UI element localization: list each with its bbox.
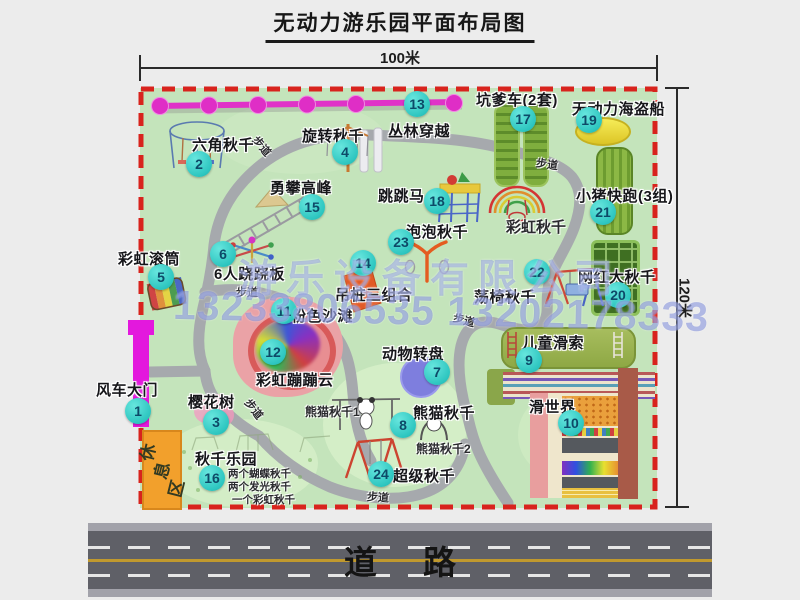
poi-6-badge: 6	[210, 241, 236, 267]
poi-18-label: 跳跳马	[378, 185, 425, 206]
map-note-8: 步道	[236, 284, 258, 300]
poi-16-label: 秋千乐园	[195, 448, 257, 469]
map-note-5: 一个彩虹秋千	[232, 492, 295, 507]
poi-12-badge: 12	[260, 339, 286, 365]
poi-17-badge: 17	[510, 106, 536, 132]
poi-11-badge: 11	[271, 298, 297, 324]
poi-1-label: 风车大门	[96, 379, 158, 400]
park-plan-canvas: 无动力游乐园平面布局图 100米 120米	[0, 0, 800, 600]
map-note-11: 步道	[366, 488, 389, 505]
poi-8-label: 熊猫秋千	[413, 402, 475, 423]
poi-18-badge: 18	[424, 188, 450, 214]
poi-21-badge: 21	[590, 199, 616, 225]
poi-11-label: 粉色沙滩	[291, 305, 353, 326]
poi-10-badge: 10	[558, 410, 584, 436]
poi-22-badge: 22	[524, 259, 550, 285]
poi-3-badge: 3	[203, 409, 229, 435]
poi-22-label: 荡椅秋千	[474, 286, 536, 307]
poi-7-badge: 7	[424, 359, 450, 385]
map-note-10: 步道	[241, 395, 267, 422]
poi-8-badge: 8	[390, 412, 416, 438]
poi-16-badge: 16	[199, 465, 225, 491]
poi-13-label: 丛林穿越	[388, 120, 450, 141]
poi-15-badge: 15	[299, 194, 325, 220]
poi-21-label: 小猪快跑(3组)	[576, 185, 673, 206]
poi-20-badge: 20	[605, 282, 631, 308]
poi-23-label: 泡泡秋千	[406, 221, 468, 242]
poi-14-badge: 14	[350, 250, 376, 276]
poi-9-badge: 9	[516, 347, 542, 373]
poi-1-badge: 1	[125, 398, 151, 424]
map-note-1: 熊猫秋千1	[305, 403, 360, 420]
poi-2-badge: 2	[186, 151, 212, 177]
map-note-0: 彩虹秋千	[506, 216, 566, 237]
poi-15-label: 勇攀高峰	[270, 177, 332, 198]
map-note-9: 步道	[451, 309, 476, 330]
poi-12-label: 彩虹蹦蹦云	[256, 369, 334, 390]
poi-23-badge: 23	[388, 229, 414, 255]
poi-24-label: 超级秋千	[393, 465, 455, 486]
poi-19-badge: 19	[576, 107, 602, 133]
poi-13-badge: 13	[404, 91, 430, 117]
map-note-7: 步道	[535, 155, 559, 174]
poi-4-badge: 4	[332, 139, 358, 165]
poi-5-badge: 5	[148, 264, 174, 290]
poi-5-label: 彩虹滚筒	[118, 248, 180, 269]
poi-24-badge: 24	[368, 461, 394, 487]
labels-layer: 1风车大门2六角秋千3樱花树4旋转秋千5彩虹滚筒66人跷跷板7动物转盘8熊猫秋千…	[0, 0, 800, 600]
map-note-2: 熊猫秋千2	[416, 440, 471, 457]
poi-14-label: 吊桩三组合	[335, 284, 413, 305]
